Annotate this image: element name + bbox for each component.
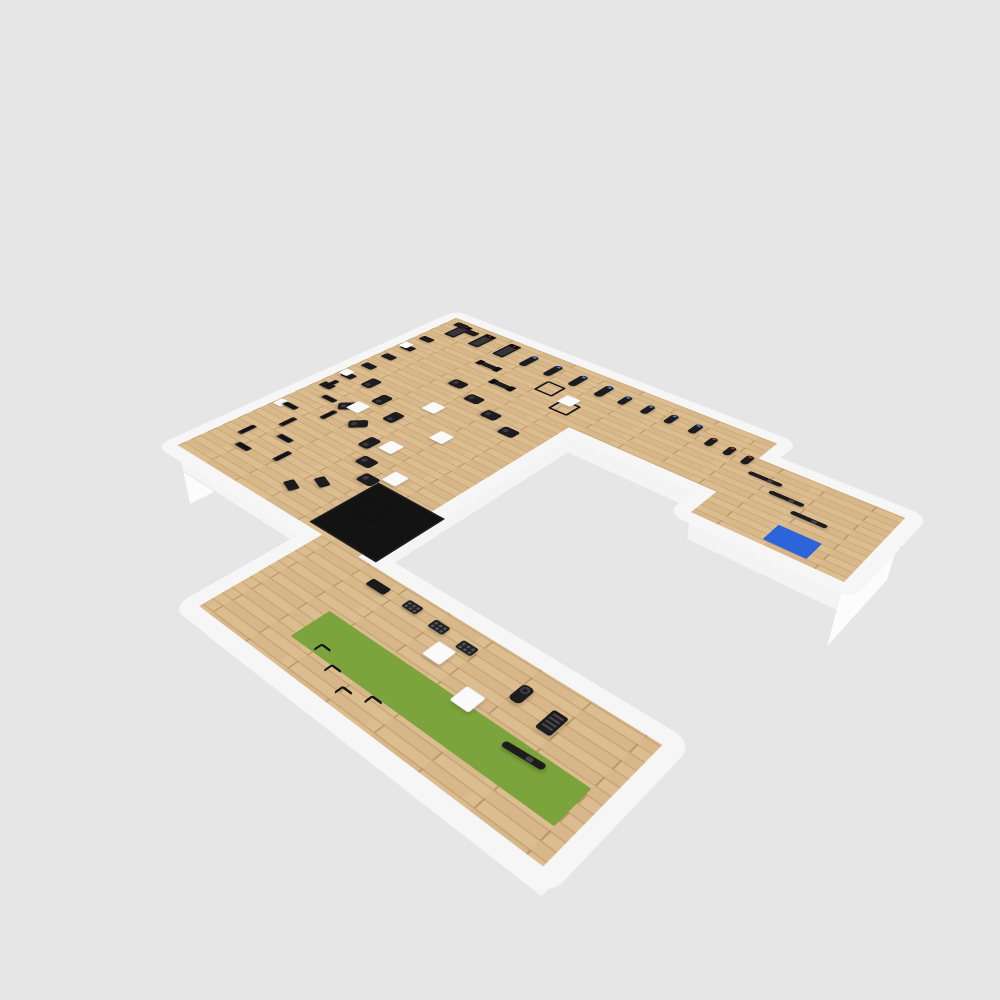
render-canvas: OleFit — [0, 0, 1000, 1000]
medicine-ball — [379, 583, 384, 592]
floor-svg — [59, 318, 922, 880]
gym-floorplan: OleFit — [59, 318, 922, 880]
